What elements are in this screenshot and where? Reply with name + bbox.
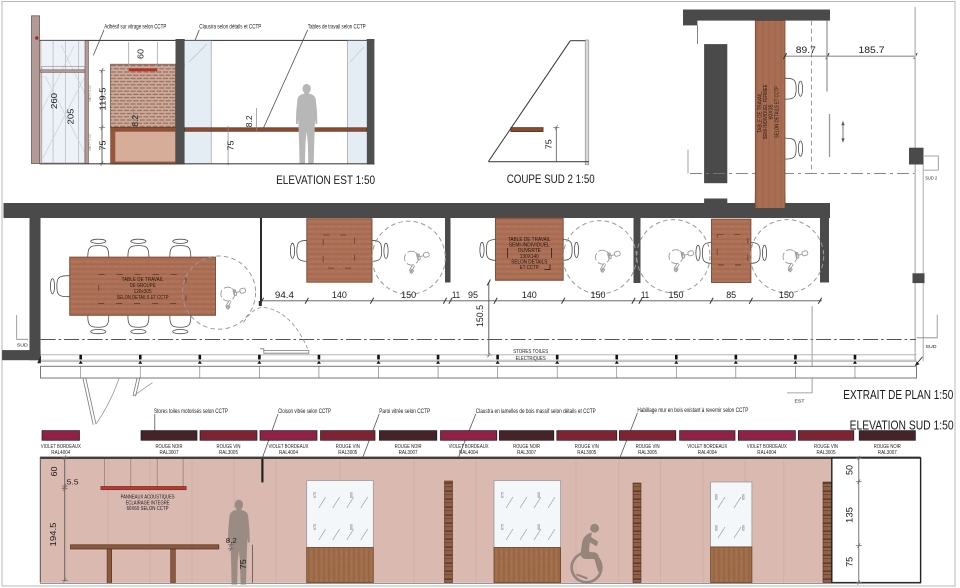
svg-text:RAL3007: RAL3007 xyxy=(399,450,418,456)
svg-text:VIOLET BORDEAUX: VIOLET BORDEAUX xyxy=(449,444,489,450)
svg-text:Cloison vitrée selon CCTP: Cloison vitrée selon CCTP xyxy=(278,409,331,415)
svg-text:RAL3005: RAL3005 xyxy=(219,450,238,456)
svg-text:NET+ 0.00: NET+ 0.00 xyxy=(88,85,92,101)
svg-text:194.5: 194.5 xyxy=(49,522,58,547)
svg-text:600: 600 xyxy=(715,525,719,531)
svg-text:11: 11 xyxy=(452,290,460,300)
svg-text:RAL3005: RAL3005 xyxy=(577,450,596,456)
svg-text:Stores toiles motorisés selon: Stores toiles motorisés selon CCTP xyxy=(154,409,228,415)
svg-text:600: 600 xyxy=(350,492,354,498)
svg-text:RAL3005: RAL3005 xyxy=(638,450,657,456)
svg-text:135: 135 xyxy=(844,507,854,523)
svg-text:150: 150 xyxy=(401,290,416,300)
svg-text:150: 150 xyxy=(669,290,684,300)
svg-text:600: 600 xyxy=(537,524,541,530)
svg-text:NET+ 0.00: NET+ 0.00 xyxy=(88,134,92,150)
svg-text:60: 60 xyxy=(136,49,146,59)
svg-text:675: 675 xyxy=(313,492,317,498)
svg-text:8.2: 8.2 xyxy=(226,536,237,545)
svg-text:75: 75 xyxy=(544,139,554,149)
svg-text:95: 95 xyxy=(468,290,478,300)
svg-text:60: 60 xyxy=(50,466,59,477)
svg-text:VIOLET BORDEAUX: VIOLET BORDEAUX xyxy=(687,444,727,450)
svg-text:60X60 SELON CCTP: 60X60 SELON CCTP xyxy=(127,506,169,512)
svg-text:VIOLET BORDEAUX: VIOLET BORDEAUX xyxy=(41,444,81,450)
svg-text:94.4: 94.4 xyxy=(275,290,294,300)
svg-text:85: 85 xyxy=(726,290,736,300)
svg-text:EXTRAIT DE PLAN 1:50: EXTRAIT DE PLAN 1:50 xyxy=(843,388,953,402)
svg-text:Claustra en lamelles de bois m: Claustra en lamelles de bois massif selo… xyxy=(476,409,596,415)
svg-text:600: 600 xyxy=(715,494,719,500)
svg-text:EST: EST xyxy=(795,398,805,404)
svg-text:RAL4004: RAL4004 xyxy=(51,450,71,456)
svg-text:Clausira selon détails et CCTP: Clausira selon détails et CCTP xyxy=(199,25,261,31)
svg-text:VIOLET BORDEAUX: VIOLET BORDEAUX xyxy=(747,444,787,450)
svg-text:11: 11 xyxy=(641,290,649,300)
svg-text:205: 205 xyxy=(66,108,76,124)
svg-text:ROUGE NOIR: ROUGE NOIR xyxy=(395,444,422,450)
svg-text:650: 650 xyxy=(742,494,746,500)
svg-text:675: 675 xyxy=(501,524,505,530)
svg-text:675: 675 xyxy=(313,524,317,530)
svg-text:75: 75 xyxy=(98,140,108,150)
svg-text:50: 50 xyxy=(844,465,854,475)
svg-text:675: 675 xyxy=(501,492,505,498)
svg-text:5.5: 5.5 xyxy=(67,478,79,487)
svg-text:119.5: 119.5 xyxy=(98,87,108,110)
svg-text:ELEVATION EST 1:50: ELEVATION EST 1:50 xyxy=(276,173,375,187)
svg-text:ROUGE VIN: ROUGE VIN xyxy=(336,444,360,450)
svg-text:75: 75 xyxy=(226,140,236,150)
svg-text:RAL3007: RAL3007 xyxy=(160,450,179,456)
svg-text:RAL3005: RAL3005 xyxy=(817,450,836,456)
svg-text:140: 140 xyxy=(332,290,347,300)
svg-text:150: 150 xyxy=(591,290,606,300)
svg-text:COUPE SUD 2 1:50: COUPE SUD 2 1:50 xyxy=(507,172,595,186)
svg-text:RAL4004: RAL4004 xyxy=(459,450,479,456)
svg-text:RAL3007: RAL3007 xyxy=(517,450,536,456)
svg-text:ELEVATION SUD 1:50: ELEVATION SUD 1:50 xyxy=(850,419,954,433)
svg-text:RAL4004: RAL4004 xyxy=(757,450,777,456)
svg-text:RAL3007: RAL3007 xyxy=(878,450,897,456)
svg-text:SUD: SUD xyxy=(17,343,29,349)
svg-text:8.2: 8.2 xyxy=(131,114,140,127)
svg-text:RAL3005: RAL3005 xyxy=(338,450,357,456)
svg-text:260: 260 xyxy=(49,93,59,109)
svg-text:185.7: 185.7 xyxy=(859,45,885,55)
svg-text:RAL4004: RAL4004 xyxy=(279,450,299,456)
svg-text:Habillage mur en bois existant: Habillage mur en bois existant à reverni… xyxy=(637,408,748,414)
svg-text:8.2: 8.2 xyxy=(245,115,254,128)
svg-text:Tables de travail selon CCTP: Tables de travail selon CCTP xyxy=(308,25,366,31)
svg-text:Adhésif sur vitrage selon CCTP: Adhésif sur vitrage selon CCTP xyxy=(104,25,166,31)
svg-text:Paroi vitrée selon CCTP: Paroi vitrée selon CCTP xyxy=(379,409,430,415)
svg-text:STORES TOILES: STORES TOILES xyxy=(513,349,548,355)
svg-text:SELON DETAILS ET CCTP: SELON DETAILS ET CCTP xyxy=(117,295,169,301)
svg-text:ROUGE VIN: ROUGE VIN xyxy=(814,444,838,450)
svg-text:150.5: 150.5 xyxy=(475,305,485,327)
svg-text:ROUGE NOIR: ROUGE NOIR xyxy=(513,444,540,450)
svg-text:VIOLET BORDEAUX: VIOLET BORDEAUX xyxy=(269,444,309,450)
svg-text:650: 650 xyxy=(742,525,746,531)
svg-text:140: 140 xyxy=(522,290,537,300)
svg-text:ROUGE VIN: ROUGE VIN xyxy=(636,444,660,450)
svg-text:600: 600 xyxy=(350,524,354,530)
svg-text:SUD 2: SUD 2 xyxy=(925,175,937,181)
svg-text:89.7: 89.7 xyxy=(796,45,816,55)
svg-text:RAL4004: RAL4004 xyxy=(698,450,718,456)
svg-text:ROUGE NOIR: ROUGE NOIR xyxy=(874,444,901,450)
svg-text:75: 75 xyxy=(239,559,248,570)
svg-text:ROUGE NOIR: ROUGE NOIR xyxy=(156,444,183,450)
svg-text:SELON DETAILS ET CCTP: SELON DETAILS ET CCTP xyxy=(774,86,780,138)
svg-text:ROUGE VIN: ROUGE VIN xyxy=(217,444,241,450)
svg-text:SUD: SUD xyxy=(926,344,938,350)
svg-text:ROUGE VIN: ROUGE VIN xyxy=(575,444,599,450)
svg-text:ELECTRIQUES: ELECTRIQUES xyxy=(516,356,546,362)
svg-text:150: 150 xyxy=(779,290,794,300)
svg-text:75: 75 xyxy=(844,557,854,567)
svg-text:600: 600 xyxy=(537,492,541,498)
svg-text:ET CCTP: ET CCTP xyxy=(520,265,539,271)
